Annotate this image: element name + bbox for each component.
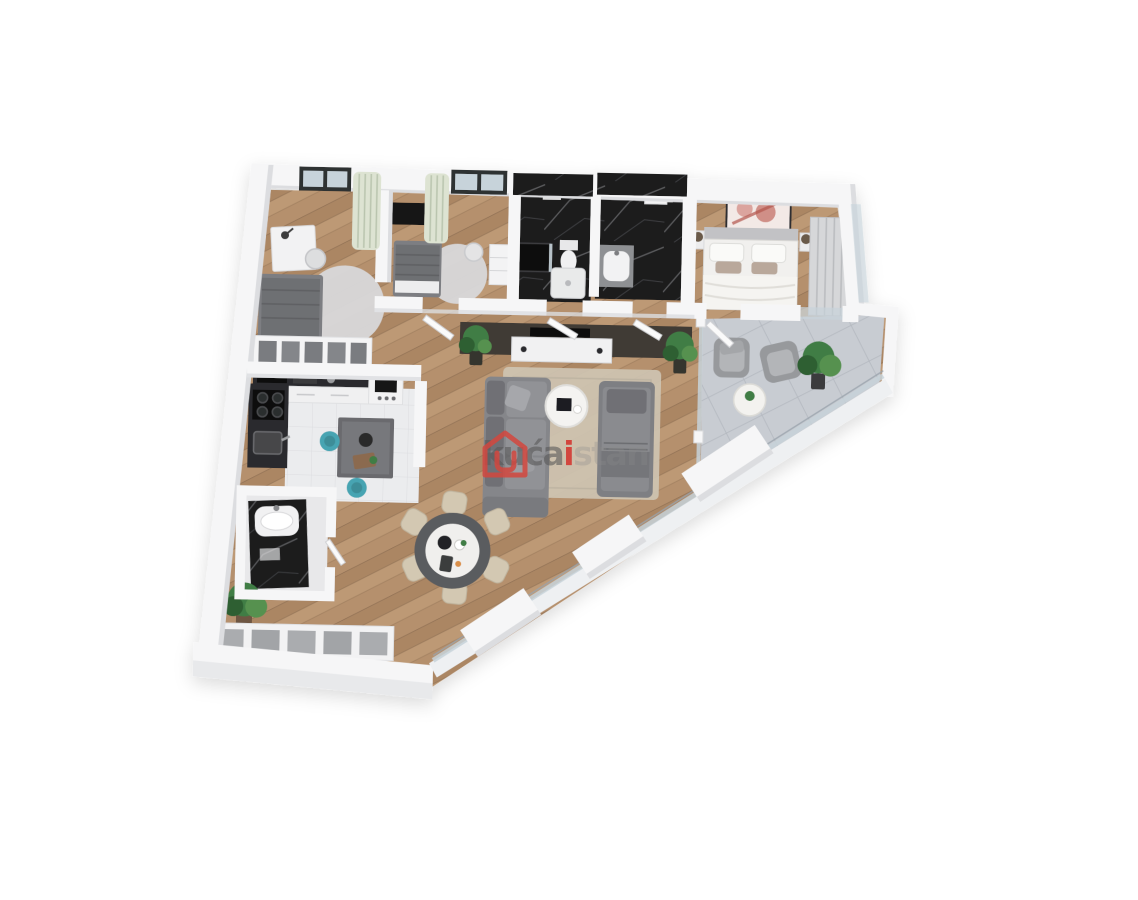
partition-bath2-master: [680, 193, 697, 319]
bath1-wall-band: [513, 173, 593, 197]
bedroom1-curtain: [352, 172, 382, 251]
double-bed: [703, 227, 799, 311]
wc-wall: [326, 497, 337, 537]
wc-wall: [238, 589, 334, 601]
partition-bed2-bath1: [507, 193, 521, 303]
wc: [248, 499, 309, 589]
coffee-table: [545, 385, 588, 428]
floor-plan-render: kućaistan: [0, 0, 1138, 900]
bedroom2-curtain: [424, 173, 449, 243]
shower: [515, 243, 550, 272]
master-wall: [694, 303, 706, 319]
pillow: [752, 244, 786, 263]
kitchen-island: [337, 417, 394, 478]
pillow: [710, 243, 744, 262]
corner-sofa: [482, 376, 551, 517]
terrace-side-table: [733, 384, 766, 417]
master-wall: [842, 306, 858, 322]
accent-pillow: [751, 262, 777, 275]
terrace-door-glass: [800, 307, 842, 320]
kitchen-sink: [253, 432, 281, 455]
apartment: [192, 162, 901, 709]
dining-chair: [441, 490, 468, 516]
desk-chair: [305, 249, 325, 269]
kitchen-counter-west: [247, 383, 291, 468]
bedroom1-window: [299, 166, 351, 191]
wc-wall: [241, 485, 337, 497]
bedroom2-window: [451, 170, 507, 195]
bath2-wall-band: [597, 173, 687, 197]
desk-chair: [465, 243, 483, 261]
master-wall: [740, 304, 800, 321]
accent-pillow: [715, 261, 741, 274]
kitchen-east-wall: [413, 381, 427, 467]
floor-plan-canvas: [0, 0, 1138, 900]
daybed: [597, 381, 655, 498]
single-bed: [393, 240, 442, 297]
